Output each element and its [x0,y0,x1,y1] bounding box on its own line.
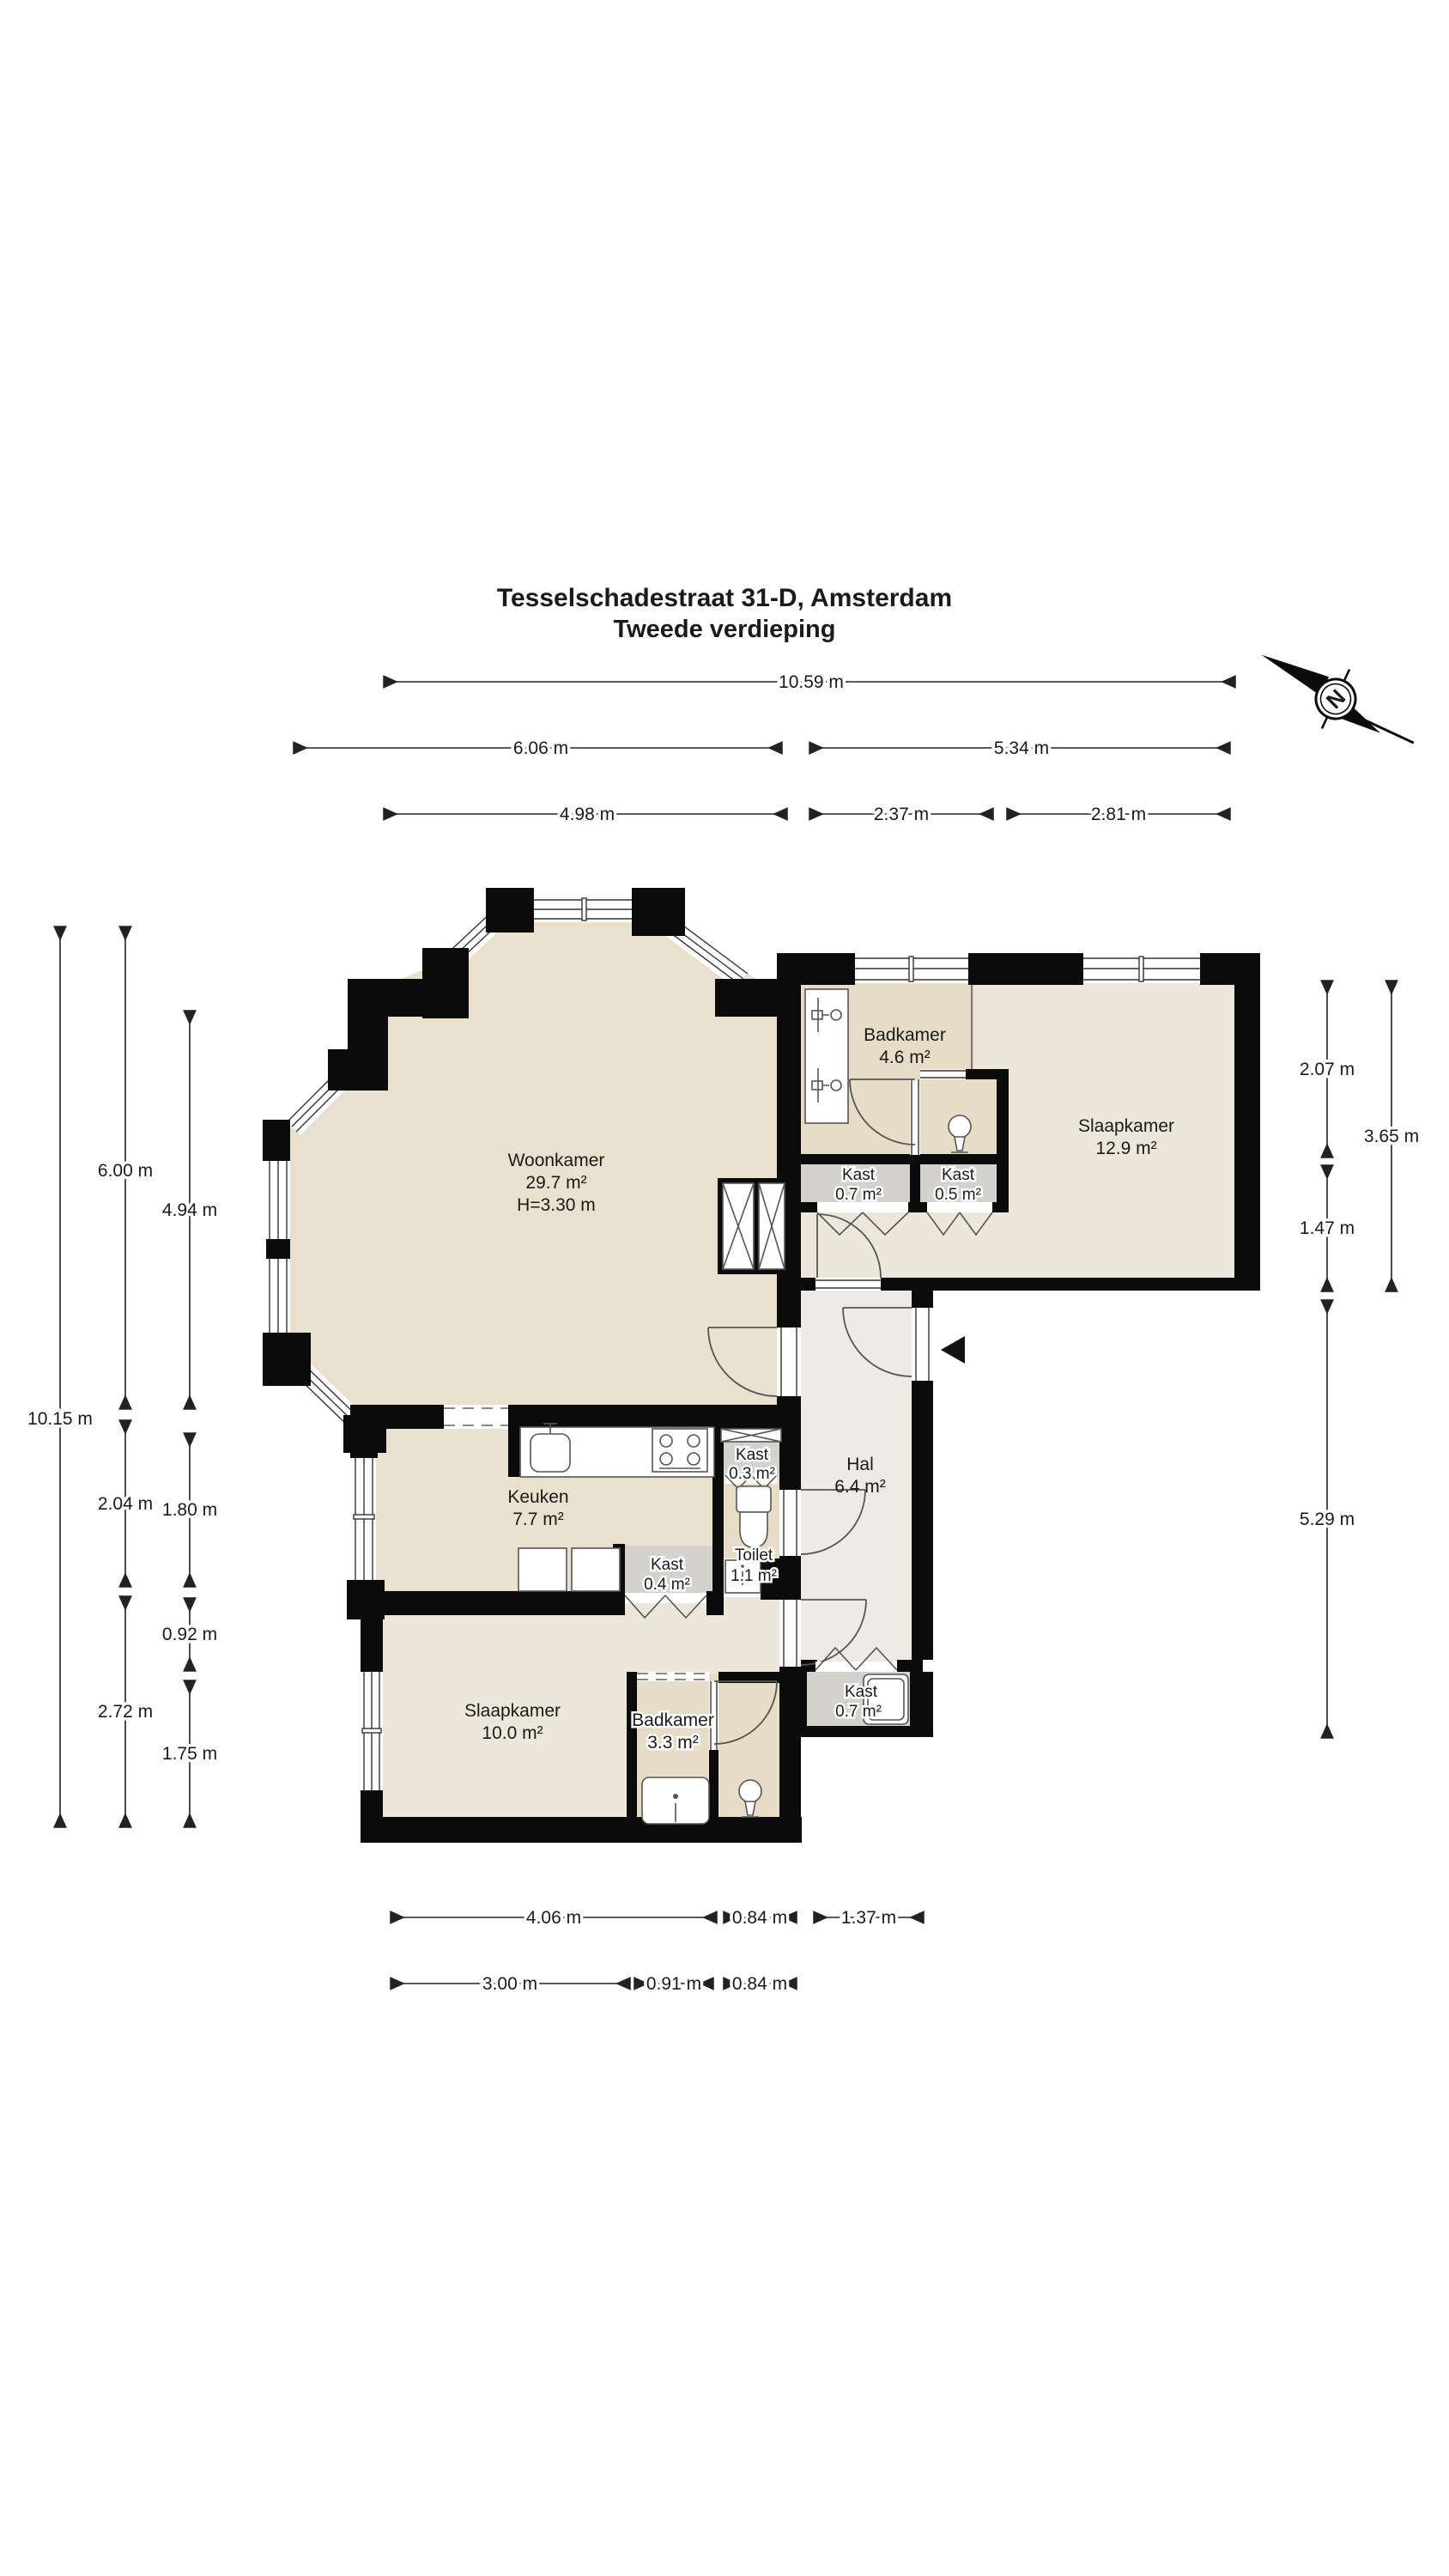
room-name: Keuken [507,1487,568,1507]
room-name: Badkamer [632,1710,714,1730]
dim-label: 5.29 m [1300,1510,1355,1529]
title-floor: Tweede verdieping [614,616,836,643]
room-area: 0.7 m² [835,1186,882,1204]
room-name: Toilet [735,1546,773,1564]
page-title: Tesselschadestraat 31-D, Amsterdam Tweed… [497,584,952,643]
north-compass-icon: N [1244,633,1430,766]
dim-label: 4.06 m [526,1908,581,1928]
room-area: 7.7 m² [512,1510,564,1529]
room-name: Slaapkamer [1078,1116,1174,1136]
room-name: Woonkamer [508,1151,605,1170]
dim-label: 1.80 m [162,1500,217,1520]
chimney-shaft-icon [718,1178,790,1274]
room-floors [275,902,1249,1829]
dim-label: 0.84 m [732,1974,787,1994]
dim-label: 1.75 m [162,1744,217,1764]
bath-counter-icon [805,989,848,1123]
room-area: 1.1 m² [731,1567,777,1585]
room-name: Kast [651,1556,684,1574]
floorplan-drawing: Tesselschadestraat 31-D, Amsterdam Tweed… [0,0,1449,2576]
room-name: Hal [846,1455,874,1474]
dim-label: 2.81 m [1091,805,1146,824]
room-name: Kast [842,1166,876,1184]
duct-icon [721,1429,781,1442]
dim-label: 10.15 m [27,1409,93,1429]
room-name: Slaapkamer [464,1701,561,1721]
room-area: 4.6 m² [879,1048,931,1067]
room-name: Badkamer [864,1025,946,1045]
room-name: Kast [736,1446,769,1464]
room-area: 0.4 m² [644,1576,690,1594]
dim-label: 5.34 m [994,738,1049,758]
dim-label: 2.04 m [98,1494,153,1514]
appliance-icon [518,1548,567,1591]
room-area: 29.7 m² [525,1173,586,1193]
dim-label: 4.98 m [560,805,615,824]
dim-label: 0.91 m [646,1974,701,1994]
dim-label: 3.00 m [482,1974,537,1994]
toilet-icon [737,1486,771,1547]
dim-label: 6.06 m [513,738,568,758]
dim-label: 2.72 m [98,1702,153,1722]
room-name: Kast [942,1166,975,1184]
room-area: 0.7 m² [835,1703,882,1721]
shower-icon [642,1777,709,1824]
kast3-label: Kast 0.3 m² [729,1446,775,1483]
appliance-icon [572,1548,620,1591]
room-area: 0.3 m² [729,1465,775,1483]
room-area: 6.4 m² [834,1477,886,1497]
dim-label: 1.37 m [841,1908,896,1928]
room-area: 0.5 m² [935,1186,981,1204]
dim-label: 3.65 m [1364,1127,1419,1146]
room-area: 10.0 m² [482,1723,543,1743]
dim-label: 2.07 m [1300,1060,1355,1079]
dim-label: 6.00 m [98,1161,153,1181]
room-height: H=3.30 m [517,1195,596,1215]
title-address: Tesselschadestraat 31-D, Amsterdam [497,584,952,612]
hob-icon [652,1429,707,1472]
entrance-arrow-icon [941,1336,965,1364]
room-name: Kast [845,1683,878,1701]
room-area: 12.9 m² [1095,1139,1156,1158]
kitchen-counter [520,1424,714,1477]
dim-label: 10.59 m [779,672,844,692]
dim-label: 4.94 m [162,1200,217,1220]
room-area: 3.3 m² [647,1733,699,1753]
floorplan-page: Tesselschadestraat 31-D, Amsterdam Tweed… [0,0,1449,2576]
dim-label: 0.84 m [732,1908,787,1928]
dim-label: 1.47 m [1300,1218,1355,1238]
dim-label: 0.92 m [162,1625,217,1644]
dim-label: 2.37 m [874,805,929,824]
